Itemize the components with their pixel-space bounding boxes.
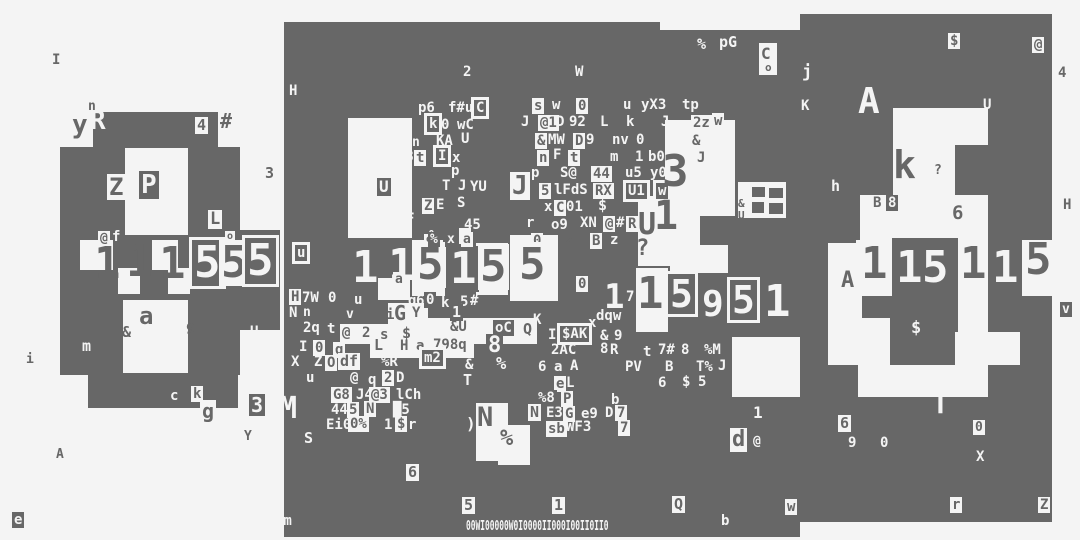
glyph: 2AC <box>551 343 576 357</box>
glyph: R <box>90 108 106 134</box>
glyph: N <box>528 404 541 421</box>
glyph: Y <box>244 430 252 443</box>
glyph: mF <box>394 198 411 212</box>
glyph: WF3 <box>566 420 591 434</box>
glyph: 1 <box>126 240 153 284</box>
glyph: 7 <box>397 134 405 148</box>
glyph: T <box>932 390 949 418</box>
glyph: $ <box>598 198 607 213</box>
light-cutout <box>123 300 188 373</box>
glyph: A <box>841 270 854 292</box>
glyph: 9 <box>700 286 726 324</box>
glyph: 2 <box>362 326 370 340</box>
glyph: 63 <box>397 150 414 164</box>
glyph: W <box>575 65 583 79</box>
glyph: K <box>533 313 541 327</box>
glyph: p <box>451 164 459 178</box>
glyph: G8 <box>331 387 352 403</box>
glyph: 5 <box>696 374 708 390</box>
glyph: Z <box>314 355 322 369</box>
glyph: u <box>295 245 307 261</box>
glyph: 0% <box>348 416 369 432</box>
glyph: B <box>590 233 602 249</box>
glyph: 5 <box>415 242 446 288</box>
glyph: Y <box>412 306 420 320</box>
glyph: n <box>537 150 549 166</box>
dark-overlay <box>769 188 783 198</box>
glyph: k <box>441 296 449 310</box>
glyph: 0 <box>441 118 449 132</box>
glyph: 2z <box>691 115 712 131</box>
light-cutout <box>732 337 800 397</box>
glyph: X <box>976 450 984 464</box>
glyph: ? <box>636 238 649 260</box>
dark-overlay <box>752 187 765 197</box>
glyph: Z <box>1038 497 1050 513</box>
glyph: D <box>605 406 613 420</box>
glyph: G <box>708 150 716 164</box>
glyph: █5 <box>393 403 410 417</box>
glyph: I <box>436 148 448 164</box>
glyph: 4 <box>1058 66 1066 80</box>
glyph: B <box>665 360 673 374</box>
glyph: u <box>354 293 362 307</box>
glyph: a <box>393 272 405 287</box>
glyph: S <box>304 431 313 446</box>
glyph: 0 <box>424 292 436 308</box>
glyph: 92 <box>569 115 586 129</box>
glyph: S <box>457 196 465 210</box>
glyph: ) <box>466 416 476 432</box>
glyph: % <box>496 356 506 373</box>
glyph: & <box>122 325 131 340</box>
glyph: m <box>610 150 618 164</box>
glyph: H <box>289 84 297 98</box>
glyph: 0 <box>880 436 888 450</box>
glyph: Z <box>422 198 434 214</box>
glyph: 9 <box>186 322 195 337</box>
glyph: 4 <box>195 117 208 134</box>
glyph: 1 <box>764 280 791 324</box>
glyph: 2q <box>303 321 320 335</box>
glyph: 1 <box>384 418 392 432</box>
glyph: t <box>643 345 651 359</box>
glyph: #q <box>701 182 718 196</box>
glyph: %M <box>704 343 721 357</box>
light-cutout <box>893 108 988 145</box>
glyph: 8 <box>386 163 394 177</box>
glyph: a <box>554 360 562 374</box>
glyph: @ <box>1032 37 1044 53</box>
glyph: L <box>566 376 574 390</box>
glyph: o <box>765 62 772 73</box>
glyph: 1 <box>352 246 379 290</box>
glyph: # <box>470 294 478 308</box>
glyph: KA <box>436 134 453 148</box>
bottom-zero-strip: 00WI00000W0I0000II000I00II0II0 <box>466 520 613 535</box>
glyph: L <box>208 210 222 229</box>
glyph: T% <box>696 360 713 374</box>
glyph: G <box>394 303 406 323</box>
glyph: 1 <box>159 242 186 286</box>
glyph: 7 <box>615 405 627 421</box>
glyph: r <box>526 216 534 230</box>
glyph: % <box>697 37 706 52</box>
glyph: R <box>626 216 638 232</box>
glyph: dqw <box>596 309 621 323</box>
glyph: 5 <box>1025 238 1052 282</box>
glyph: P <box>139 171 159 199</box>
glyph: %R <box>381 355 398 369</box>
glyph: 1 <box>753 405 763 421</box>
glyph: 01 <box>566 200 583 214</box>
glyph: S@ <box>560 166 577 180</box>
glyph: 6 <box>952 204 963 223</box>
glyph: 9 <box>848 436 856 450</box>
glyph: sb <box>546 421 567 437</box>
glyph: C <box>761 46 771 62</box>
glyph: X <box>291 355 299 369</box>
glyph: x <box>544 200 552 214</box>
glyph: 1 <box>654 196 678 236</box>
glyph: 44 <box>591 166 612 182</box>
glyph: E <box>436 198 444 212</box>
glyph: L <box>374 338 383 353</box>
glyph: A <box>858 84 880 120</box>
glyph: D <box>396 371 404 385</box>
glyph: w <box>552 98 560 112</box>
glyph: M <box>279 394 297 424</box>
glyph: k <box>427 116 439 132</box>
glyph: 1 <box>992 246 1019 290</box>
glyph: 0 <box>328 291 336 305</box>
glyph: g <box>394 216 402 230</box>
glyph: F <box>406 212 414 226</box>
glyph: U1 <box>626 183 647 199</box>
glyph: r <box>950 497 962 513</box>
glyph: J <box>695 150 707 166</box>
glyph: d <box>730 428 747 452</box>
glyph: 1 <box>861 242 888 286</box>
glyph: 7 <box>626 290 634 304</box>
glyph: 1 <box>960 242 987 286</box>
glyph: 6 <box>536 359 548 375</box>
glyph: @ <box>350 371 358 385</box>
glyph: pG <box>719 35 737 50</box>
glyph: Q <box>523 322 532 337</box>
glyph: v <box>1060 302 1072 317</box>
glyph: y <box>72 112 88 138</box>
glyph: A <box>568 358 580 374</box>
glyph: 1 <box>896 246 923 290</box>
glyph: % <box>428 232 440 247</box>
glyph: O <box>325 355 337 371</box>
glyph: 8 <box>130 212 139 227</box>
glyph: 6 <box>406 464 419 481</box>
glyph: g <box>200 400 216 422</box>
glyph: tp <box>682 98 699 112</box>
glyph: 6 <box>658 376 666 390</box>
glyph: 5 <box>539 183 551 199</box>
glyph: N <box>477 404 493 431</box>
glyph: # <box>220 111 232 131</box>
glyph: B <box>873 196 881 210</box>
glyph: v <box>346 308 354 321</box>
glyph: x <box>445 232 457 247</box>
glyph: 5 <box>478 244 509 290</box>
glyph: & <box>535 133 547 149</box>
glyph: T <box>463 373 472 388</box>
glyph: H <box>289 289 301 305</box>
glyph: b <box>721 514 729 528</box>
glyph: 44 <box>331 403 348 417</box>
glyph: $ <box>680 374 692 390</box>
glyph: u <box>623 98 631 112</box>
glyph: N <box>364 401 376 417</box>
glyph: h <box>831 179 840 194</box>
glyph: F <box>553 148 561 162</box>
glyph: XN <box>580 216 597 230</box>
glyph: lFdS <box>554 183 588 197</box>
dark-overlay <box>890 318 955 365</box>
glyph: 8 <box>598 341 610 357</box>
glyph: 3 <box>662 150 689 194</box>
glyph: u5 <box>625 166 642 180</box>
glyph: 9 <box>614 329 622 343</box>
glyph: @ <box>342 326 350 340</box>
glyph: 5 <box>922 246 949 290</box>
light-cutout <box>858 365 988 397</box>
glyph: t <box>568 150 580 166</box>
glyph: #m <box>275 514 292 528</box>
glyph: a <box>139 304 153 328</box>
glyph: $ <box>911 320 921 337</box>
glyph: m <box>82 339 91 354</box>
glyph: H <box>1063 198 1071 212</box>
glyph: i <box>26 353 34 366</box>
glyph: k <box>626 115 634 129</box>
glyph: $ <box>399 180 408 195</box>
glyph: j <box>802 64 812 81</box>
glyph: 8 <box>681 343 689 357</box>
glyph: lCh <box>396 388 421 402</box>
glyph: 3 <box>249 394 265 416</box>
glyph: L <box>600 115 608 129</box>
glyph: C <box>474 100 486 116</box>
glyph: n <box>303 306 311 319</box>
glyph: Z <box>107 174 125 200</box>
glyph: o9 <box>551 218 568 232</box>
glyph: YU <box>470 180 487 194</box>
glyph: 0 <box>576 276 588 292</box>
glyph: $ <box>948 33 960 49</box>
glyph: 0 <box>973 420 985 435</box>
glyph: df <box>338 353 360 370</box>
glyph: u <box>306 371 314 385</box>
glyph: a <box>461 232 473 247</box>
glyph: 5 <box>517 242 548 288</box>
glyph: k <box>893 146 916 184</box>
glyph: U <box>666 130 674 144</box>
glyph: E3 <box>546 406 563 420</box>
glyph: p6 <box>418 101 435 115</box>
glyph: f#u <box>448 101 473 115</box>
glyph: 2 <box>463 65 471 79</box>
glyph: 2 <box>382 370 394 386</box>
glyph: 5 <box>668 274 695 314</box>
glyph: I <box>299 340 307 354</box>
glyph: & <box>465 358 473 372</box>
glyph: T <box>440 178 452 194</box>
glyph: w <box>712 113 724 129</box>
glyph: PV <box>625 360 642 374</box>
glyph: H <box>400 339 408 353</box>
glyph: @ <box>603 216 615 232</box>
glyph: z <box>610 233 618 247</box>
glyph: 7W <box>302 291 319 305</box>
glyph: J <box>716 358 728 374</box>
light-cutout <box>670 245 728 273</box>
glyph: J <box>521 115 529 129</box>
glyph: /yc <box>686 166 711 180</box>
glyph: p <box>531 166 539 180</box>
glyph: e <box>12 512 24 528</box>
glyph: $ <box>395 416 407 432</box>
glyph: D <box>573 133 585 149</box>
dark-overlay <box>769 203 783 214</box>
glyph: @ <box>753 435 761 448</box>
glyph: 5 <box>192 240 223 286</box>
glyph: q <box>368 373 376 387</box>
glyph: U <box>377 178 391 196</box>
glyph: 5 <box>245 238 276 284</box>
glyph: 6 <box>838 415 851 432</box>
glyph: 7 <box>618 420 630 436</box>
glyph: z <box>565 233 573 247</box>
glyph: U <box>738 210 745 221</box>
glyph: w <box>785 499 797 515</box>
glyph: D <box>556 115 564 129</box>
glyph: P <box>561 391 573 407</box>
glyph: r <box>408 418 416 432</box>
glyph: s <box>532 98 544 114</box>
glyph: c <box>170 389 178 403</box>
glyph: N <box>289 306 297 320</box>
glyph: I <box>548 328 556 342</box>
glyph: n <box>412 136 420 149</box>
glyph: J <box>510 172 530 200</box>
glyph: 0 <box>636 133 644 147</box>
glyph: &U <box>450 320 467 334</box>
glyph: m2 <box>422 350 443 366</box>
glyph: 1 <box>637 272 664 316</box>
glyph: J <box>661 115 669 129</box>
glyph: o <box>225 231 235 243</box>
glyph: U <box>461 132 469 146</box>
glyph: 1 <box>94 242 121 286</box>
glyph: & <box>738 198 745 209</box>
glyph: & <box>690 133 702 149</box>
glyph: R <box>610 343 618 357</box>
glyph: wC <box>457 118 474 132</box>
glyph: 8 <box>886 195 898 211</box>
glitch-canvas: InyR4#3ZP8L@f11155o5a&9mUckg3YiAeH2Wp6f#… <box>0 0 1080 540</box>
glyph: I <box>52 53 60 67</box>
glyph: U <box>983 98 991 112</box>
glyph: nv <box>612 133 629 147</box>
glyph: 5 <box>462 497 475 514</box>
glyph: 5 <box>730 280 757 320</box>
glyph: yX3 <box>641 98 666 112</box>
glyph: K <box>801 99 809 113</box>
glyph: 7# <box>658 343 675 357</box>
glyph: 1 <box>635 150 643 164</box>
glyph: t <box>414 150 426 166</box>
glyph: t <box>325 321 337 337</box>
glyph: 9 <box>586 133 594 147</box>
glyph: Q <box>672 496 685 513</box>
glyph: U <box>250 325 258 339</box>
glyph: ? <box>934 164 942 177</box>
glyph: J <box>456 178 468 194</box>
glyph: 1 <box>552 497 565 514</box>
glyph: MW <box>548 133 565 147</box>
glyph: 0 <box>576 98 588 114</box>
glyph: A <box>56 448 64 461</box>
dark-overlay <box>752 202 764 213</box>
glyph: 1 <box>448 246 479 292</box>
glyph: % <box>500 428 513 450</box>
glyph: C <box>554 200 566 216</box>
glyph: # <box>616 216 624 230</box>
glyph: $AK <box>560 326 589 342</box>
glyph: 3 <box>265 166 274 181</box>
